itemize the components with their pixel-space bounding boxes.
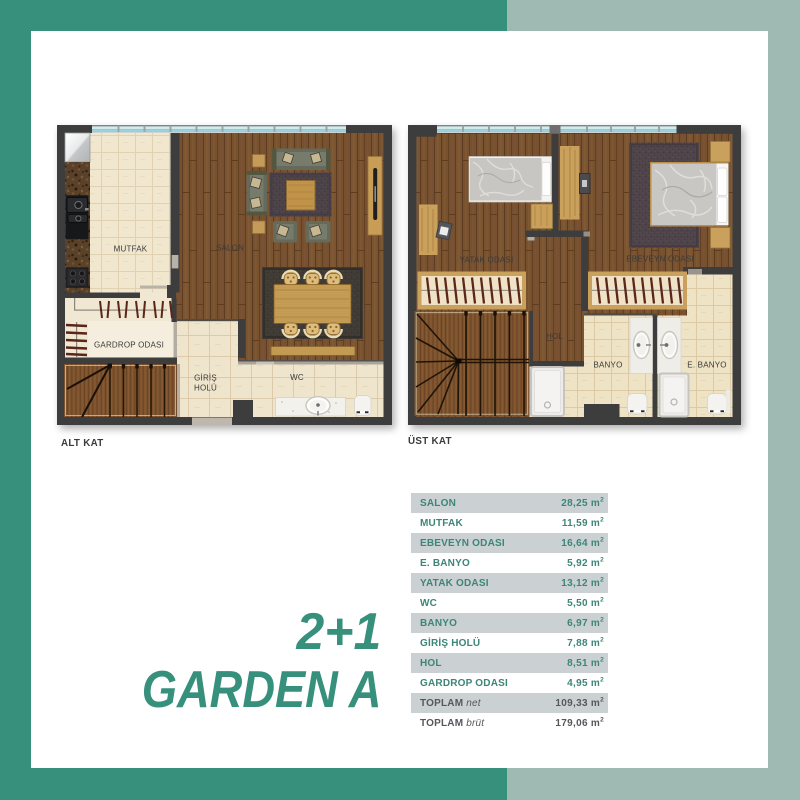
svg-text:WC: WC <box>290 373 304 382</box>
svg-text:MUTFAK: MUTFAK <box>114 244 148 253</box>
svg-text:HOLÜ: HOLÜ <box>194 383 217 392</box>
svg-text:GARDROP ODASI: GARDROP ODASI <box>94 340 164 349</box>
svg-text:EBEVEYN ODASI: EBEVEYN ODASI <box>626 255 694 264</box>
svg-text:BANYO: BANYO <box>593 360 622 369</box>
svg-text:GİRİŞ: GİRİŞ <box>194 373 217 382</box>
svg-text:SALON: SALON <box>216 244 244 253</box>
svg-text:E. BANYO: E. BANYO <box>687 361 726 370</box>
svg-text:HOL: HOL <box>546 332 563 341</box>
svg-text:YATAK ODASI: YATAK ODASI <box>460 255 514 264</box>
